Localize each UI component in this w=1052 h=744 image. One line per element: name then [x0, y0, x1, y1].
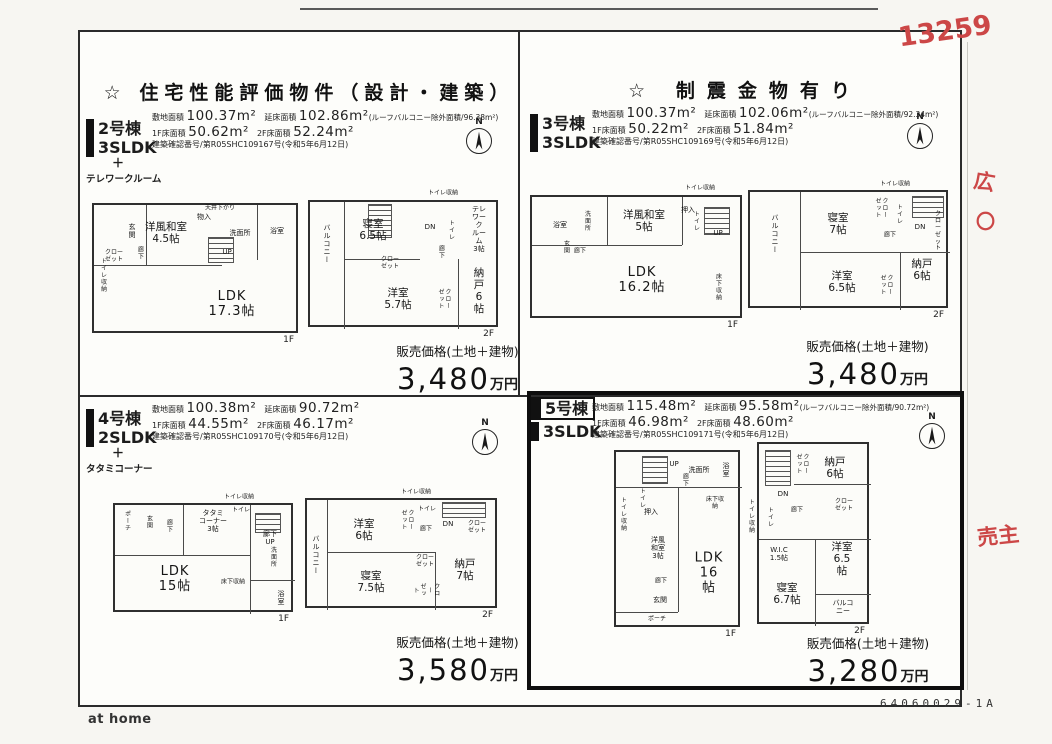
floor-tag: 2F — [933, 310, 944, 320]
room-balcony: バルコニー — [323, 224, 331, 264]
room-closet: クロー ゼット — [105, 250, 123, 264]
room-washitsu: 洋風 和室 3帖 — [651, 536, 665, 560]
room-ceiling-note: 天井下がり — [205, 206, 235, 213]
room-toilet: トイレ — [447, 220, 454, 241]
room-toilet: トイレ — [418, 507, 436, 514]
unit-5-price: 販売価格(土地＋建物) 3,280万円 — [778, 633, 958, 688]
room-ldk: LDK 17.3帖 — [209, 290, 256, 320]
floor-tag: 2F — [483, 329, 494, 339]
unit-2-price: 販売価格(土地＋建物) 3,480万円 — [335, 341, 580, 396]
unit-2-specs: 敷地面積 100.37m² 延床面積 102.86m²(ルーフバルコニー除外面積… — [152, 109, 498, 152]
at-home-logo: at home — [88, 712, 152, 727]
room-dn: DN — [915, 223, 926, 231]
unit-3-specs: 敷地面積 100.37m² 延床面積 102.06m²(ルーフバルコニー除外面積… — [592, 106, 938, 149]
unit-name: 4号棟 — [86, 409, 141, 428]
room-nando: 納戸 6帖 — [912, 258, 933, 282]
document-code: 64060029-1A — [880, 697, 997, 710]
room-toilet-storage: トイレ収納 — [619, 497, 626, 532]
room-bedroom: 寝室 7.5帖 — [357, 570, 384, 594]
unit-5-floorplan-2f: クロー ゼット 納戸 6帖 DN トイレ トイレ収納 廊下 クロー ゼット W.… — [757, 442, 869, 624]
floor-tag: 1F — [727, 320, 738, 330]
room-yoshitsu: 洋室 6.5帖 — [828, 270, 855, 294]
room-toilet: トイレ — [766, 507, 773, 528]
room-genkan: 玄関 — [128, 223, 136, 239]
room-closet: クロー ゼット — [381, 257, 399, 271]
room-toilet-storage: トイレ収納 — [685, 186, 715, 193]
room-bedroom: 寝室 6.5帖 — [359, 218, 386, 242]
price-unit: 万円 — [490, 377, 518, 393]
room-toilet-storage: トイレ収納 — [747, 499, 754, 534]
room-bath: 浴室 — [720, 462, 732, 478]
room-hall: 廊下 — [791, 508, 803, 515]
room-dn: DN — [778, 490, 789, 498]
room-ldk: LDK 15帖 — [159, 565, 192, 595]
room-toilet: トイレ — [692, 211, 699, 232]
unit-2-floorplan-2f: バルコニー 寝室 6.5帖 トイレ収納 DN トイレ テレワーク ルーム 3帖 … — [308, 200, 498, 327]
room-up: UP — [713, 229, 722, 237]
room-bath: 浴室 — [270, 227, 284, 235]
room-toilet-storage: トイレ収納 — [880, 182, 910, 189]
price-label: 販売価格(土地＋建物) — [770, 336, 965, 355]
stairs-icon — [442, 502, 486, 518]
unit-4-floorplan-1f: ポーチ 玄関 廊下 タタミ コーナー 3帖 トイレ収納 トイレ 廊下 UP 洗面… — [113, 503, 293, 612]
room-toilet-storage: トイレ収納 — [401, 490, 431, 497]
floor-tag: 1F — [278, 614, 289, 624]
room-genkan: 玄関 — [145, 515, 152, 529]
room-porch: ポーチ — [648, 617, 666, 624]
room-hall2: 廊下 — [655, 579, 667, 586]
price-unit: 万円 — [490, 668, 518, 684]
room-ldk: LDK 16.2帖 — [619, 266, 666, 296]
stairs-icon — [642, 456, 668, 484]
room-balcony: バルコニー — [831, 599, 855, 615]
room-toilet: トイレ — [895, 204, 902, 225]
unit-2-floorplan-1f: 玄関 洋風和室 4.5帖 物入 天井下がり 洗面所 浴室 廊下 クロー ゼット … — [92, 203, 298, 333]
room-tatami: タタミ コーナー 3帖 — [199, 509, 227, 533]
room-toilet-storage: トイレ収納 — [428, 191, 458, 198]
price-unit: 万円 — [900, 372, 928, 388]
room-closet: クロー ゼット — [873, 198, 887, 219]
room-senmen: 洗面所 — [230, 229, 251, 237]
room-senmen: 洗面所 — [269, 547, 276, 568]
room-toilet: トイレ — [232, 508, 250, 515]
room-toilet: トイレ — [638, 488, 645, 509]
unit-plus: ＋ — [86, 157, 150, 170]
unit-3-floorplan-2f: バルコニー 寝室 7帖 クロー ゼット トイレ収納 トイレ DN クロー ゼット… — [748, 190, 948, 308]
price-label: 販売価格(土地＋建物) — [335, 341, 580, 360]
room-washitsu: 洋風和室 5帖 — [623, 209, 665, 233]
room-nando: 納戸 6帖 — [471, 267, 488, 315]
unit-name: 3号棟 — [530, 114, 585, 133]
room-dn: DN — [443, 520, 454, 528]
floor-tag: 2F — [482, 610, 493, 620]
room-up: UP — [669, 460, 678, 468]
room-balcony: バルコニー — [771, 214, 779, 254]
room-bedroom: 寝室 7帖 — [828, 212, 849, 236]
unit-5-floorplan-1f: UP 廊下 洗面所 浴室 トイレ トイレ収納 押入 洋風 和室 3帖 廊下 玄関… — [614, 450, 740, 627]
room-up: UP — [222, 248, 231, 256]
room-senmen: 洗面所 — [583, 211, 590, 232]
room-nando: 納戸 7帖 — [455, 558, 476, 582]
unit-3-floorplan-1f: 浴室 洗面所 洋風和室 5帖 押入 トイレ収納 トイレ UP 玄関 廊下 LDK… — [530, 195, 742, 318]
unit-name: 5号棟 — [533, 399, 588, 418]
room-porch: ポーチ — [123, 511, 130, 532]
room-wic: W.I.C 1.5帖 — [770, 546, 788, 562]
room-yoshitsu: 洋室 5.7帖 — [384, 287, 411, 311]
room-toilet-storage: トイレ収納 — [99, 258, 106, 293]
room-nando: 納戸 6帖 — [825, 456, 846, 480]
room-hall: 廊下 — [574, 249, 586, 256]
room-closet: クロー ゼット — [399, 510, 413, 531]
compass-icon: N — [468, 419, 502, 455]
room-hall: 廊下 — [420, 527, 432, 534]
room-closet4: クロー ゼット — [411, 582, 439, 598]
room-hall: 廊下 — [437, 245, 444, 259]
room-closet2: クロー ゼット — [934, 211, 942, 252]
room-yoshitsu: 洋室 6帖 — [354, 518, 375, 542]
room-closet: クロー ゼット — [794, 454, 808, 475]
room-closet2: クロー ゼット — [835, 499, 853, 513]
unit-2-name-block: 2号棟 3SLDK ＋ テレワークルーム — [86, 119, 161, 185]
room-yoshitsu: 洋室 6.5帖 — [830, 541, 855, 577]
unit-4-name-block: 4号棟 2SLDK ＋ タタミコーナー — [86, 409, 157, 475]
unit-name: 2号棟 — [86, 119, 141, 138]
room-bath: 浴室 — [553, 221, 567, 229]
room-hall: 廊下 — [681, 473, 688, 487]
price-value: 3,280 — [807, 654, 900, 688]
floor-tag: 1F — [283, 335, 294, 345]
room-closet2: クロー ゼット — [468, 521, 486, 535]
unit-extra-room: タタミコーナー — [86, 461, 157, 475]
room-yukashita: 床下収納 — [704, 497, 727, 511]
compass-icon: N — [462, 118, 496, 154]
room-closet3: クロー ゼット — [416, 555, 434, 569]
room-genkan: 玄関 — [562, 240, 569, 254]
scan-top-edge-line — [300, 8, 878, 10]
handwritten-number: 13259 — [896, 10, 993, 54]
room-ldk: LDK 16帖 — [695, 552, 724, 597]
room-hall: 廊下 — [884, 233, 896, 240]
room-hall-up: 廊下 UP — [260, 530, 281, 546]
room-senmen: 洗面所 — [689, 466, 710, 474]
unit-5-name-block: 5号棟 3SLDK — [531, 397, 602, 441]
unit-layout: 3SLDK — [530, 133, 601, 152]
handwritten-mark-2: 〇 — [976, 207, 995, 234]
handwritten-mark-3: 売主 — [976, 518, 1021, 552]
handwritten-mark-1: 広 — [972, 164, 998, 197]
price-value: 3,480 — [397, 362, 490, 396]
room-yukashita: 床下収納 — [221, 580, 245, 587]
room-yukashita: 床下収納 — [714, 273, 721, 301]
room-closet2: クロー ゼット — [436, 289, 450, 310]
stairs-icon — [765, 450, 791, 486]
unit-layout: 2SLDK — [86, 428, 157, 447]
room-closet3: クロー ゼット — [878, 275, 892, 296]
title-seismic-hardware: ☆ 制震金物有り — [540, 76, 950, 103]
room-dn: DN — [425, 223, 436, 231]
compass-icon: N — [903, 113, 937, 149]
room-washitsu: 洋風和室 4.5帖 — [145, 221, 187, 245]
room-bath: 浴室 — [276, 590, 286, 606]
unit-4-floorplan-2f: バルコニー 洋室 6帖 クロー ゼット トイレ収納 トイレ 廊下 DN クロー … — [305, 498, 497, 608]
room-balcony: バルコニー — [312, 535, 320, 575]
room-telework: テレワーク ルーム 3帖 — [471, 205, 488, 253]
unit-extra-room: テレワークルーム — [86, 171, 161, 185]
room-bedroom: 寝室 6.7帖 — [773, 582, 800, 606]
scan-right-edge-line — [967, 42, 968, 690]
price-label: 販売価格(土地＋建物) — [778, 633, 958, 652]
unit-3-price: 販売価格(土地＋建物) 3,480万円 — [770, 336, 965, 391]
price-value: 3,580 — [397, 653, 490, 687]
unit-plus: ＋ — [86, 447, 150, 460]
room-toilet-storage: トイレ収納 — [224, 495, 254, 502]
room-mono: 物入 — [197, 213, 211, 221]
unit-5-specs: 敷地面積 115.48m² 延床面積 95.58m²(ルーフバルコニー除外面積/… — [592, 399, 929, 442]
title-performance-evaluation: ☆ 住宅性能評価物件（設計・建築） — [100, 78, 518, 105]
price-unit: 万円 — [901, 669, 929, 685]
room-hall: 廊下 — [165, 519, 172, 533]
price-value: 3,480 — [807, 357, 900, 391]
room-hall: 廊下 — [136, 246, 143, 260]
unit-layout: 3SLDK — [531, 422, 602, 441]
compass-icon: N — [915, 413, 949, 449]
room-genkan: 玄関 — [653, 596, 667, 604]
unit-4-specs: 敷地面積 100.38m² 延床面積 90.72m² 1F床面積 44.55m²… — [152, 401, 360, 444]
unit-layout: 3SLDK — [86, 138, 157, 157]
unit-3-name-block: 3号棟 3SLDK — [530, 114, 601, 152]
room-oshiire: 押入 — [644, 508, 658, 516]
floor-tag: 1F — [725, 629, 736, 639]
